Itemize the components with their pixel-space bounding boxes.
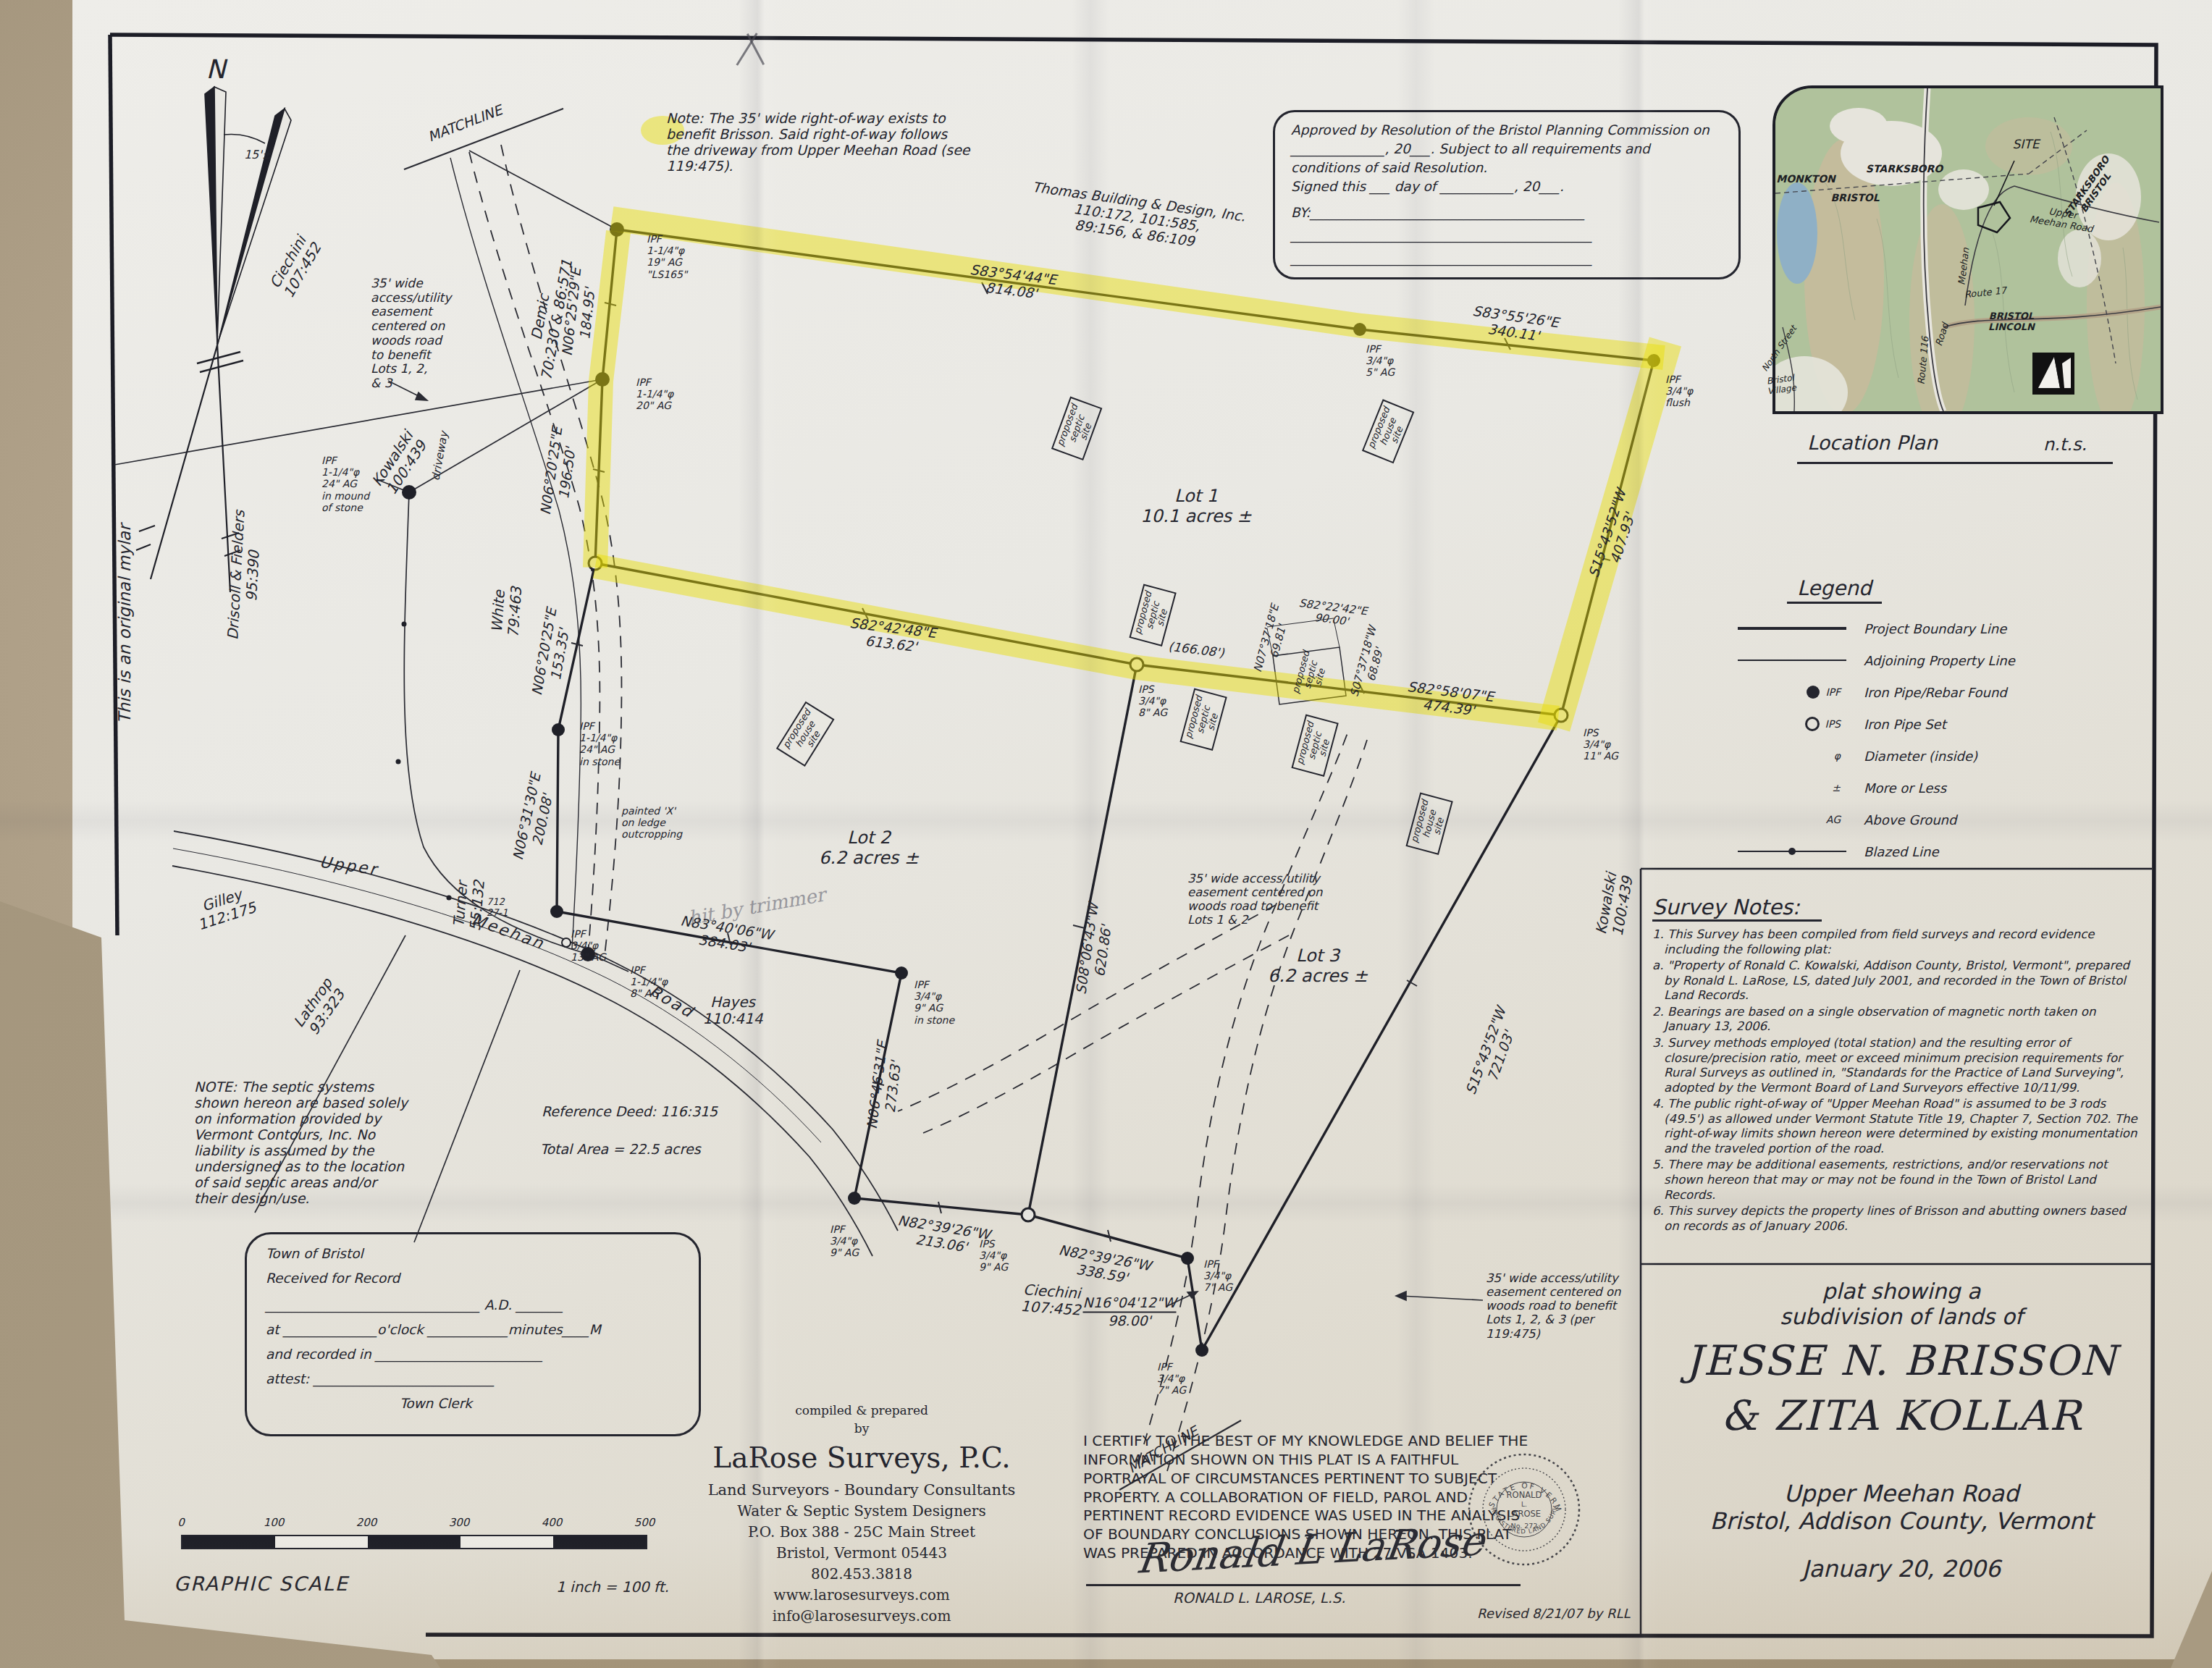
map-label-line: 3/4"φ (1157, 1373, 1186, 1384)
scale-tick-labels: 0100200300400500 (181, 1516, 644, 1530)
map-label-line: IPF (914, 979, 954, 990)
firm-line: Water & Septic System Designers (681, 1502, 1043, 1520)
leader-arrows (388, 381, 1483, 1306)
scale-segment (461, 1536, 553, 1548)
total-area: Total Area = 22.5 acres (540, 1141, 701, 1157)
map-label: MONKTON (1776, 173, 1835, 185)
map-label-line: 1-1/4"φ (647, 245, 687, 256)
map-label-line: Reference Deed: 116:315 (542, 1103, 718, 1119)
map-label-line: 5" AG (1366, 366, 1395, 378)
scale-tick: 0 (177, 1516, 185, 1529)
map-label-line: outcropping (621, 828, 682, 840)
survey-note: 3. Survey methods employed (total statio… (1652, 1036, 2139, 1095)
map-label-line: the driveway from Upper Meehan Road (see (666, 142, 970, 158)
legend-item-label: Adjoining Property Line (1864, 653, 2015, 668)
scale-segment (275, 1536, 368, 1548)
map-label-line: Lots 1, 2, & 3 (per (1486, 1313, 1621, 1326)
map-label: IPF3/4"φflush (1665, 374, 1693, 409)
map-label-line: 35' wide (371, 277, 451, 291)
owner-name-2: & ZITA KOLLAR (1651, 1391, 2152, 1439)
parcel-white: White79:463 (488, 585, 525, 638)
map-label-line: 35' wide access/utility (1486, 1271, 1621, 1285)
firm-line: compiled & prepared (681, 1403, 1043, 1418)
map-label-line: MONKTON (1776, 173, 1835, 185)
map-label-line: painted 'X' (621, 805, 682, 817)
legend-key: φ (1834, 750, 1841, 762)
record-line: at ______________o'clock ____________min… (266, 1322, 680, 1337)
map-label-line: 3/4"φ (1665, 385, 1693, 397)
map-label-line: 7" AG (1203, 1281, 1232, 1293)
legend-item-label: Iron Pipe Set (1864, 717, 1946, 732)
approval-line: Signed this ___ day of ___________, 20__… (1291, 177, 1723, 196)
map-label-line: IPF (579, 720, 620, 732)
survey-note: 4. The public right-of-way of "Upper Mee… (1652, 1097, 2139, 1156)
map-label-line: 3/4"φ (571, 940, 606, 951)
legend-symbol-glyph: AG (1731, 814, 1846, 825)
map-label-line: 19" AG (647, 256, 687, 268)
map-label-line: This is an original mylar (115, 524, 135, 723)
map-label-line: Vermont Contours, Inc. No (194, 1126, 408, 1142)
scale-ratio: 1 inch = 100 ft. (556, 1578, 669, 1596)
map-label-line: IPF (630, 964, 668, 976)
map-label: IPF3/4"φ7" AG (1203, 1258, 1232, 1294)
map-label-line: of stone (321, 502, 369, 513)
legend-item-label: Project Boundary Line (1864, 621, 2006, 636)
legend-item: Project Boundary Line (1731, 612, 2165, 644)
legend-item-label: Iron Pipe/Rebar Found (1864, 685, 2007, 700)
map-label-line: 15'± (244, 148, 272, 162)
map-label-line: 3/4"φ (1138, 695, 1167, 707)
map-label-line: 3/4"φ (830, 1235, 859, 1247)
firm-line: by (681, 1421, 1043, 1436)
signature-line (1086, 1584, 1521, 1586)
mylar-note: This is an original mylar (115, 524, 135, 723)
firm-line: Bristol, Vermont 05443 (681, 1544, 1043, 1562)
scale-tick: 400 (542, 1516, 563, 1529)
legend-key: AG (1826, 814, 1841, 825)
legend-symbol-thick (1731, 627, 1846, 630)
map-label-line: LINCOLN (1988, 321, 2035, 332)
map-label-line: 1-1/4"φ (321, 466, 369, 478)
map-label-line: Lot 3 (1268, 946, 1368, 966)
title-line-1: plat showing a (1651, 1279, 2152, 1304)
map-label-line: 7" AG (1157, 1384, 1186, 1396)
revision-note: Revised 8/21/07 by RLL (1477, 1606, 1631, 1621)
map-label: BRISTOLLINCOLN (1988, 311, 2035, 332)
map-label-line: 27-1 (487, 907, 508, 918)
map-label: IPF3/4"φ13" AG (571, 928, 606, 964)
legend-item: ±More or Less (1731, 772, 2165, 804)
firm-line: Land Surveyors - Boundary Consultants (681, 1481, 1043, 1499)
map-label-line: Lots 1, 2, (371, 362, 451, 376)
firm-line: www.larosesurveys.com (681, 1586, 1043, 1604)
map-label-line: their design/use. (194, 1190, 408, 1206)
map-label: IPF1-1/4"φ8" AG (630, 964, 668, 1000)
map-label: IPF3/4"φ9" AG (830, 1223, 859, 1259)
legend-item: IPSIron Pipe Set (1731, 708, 2165, 740)
legend-item-label: More or Less (1864, 780, 1946, 796)
map-label-line: on information provided by (194, 1111, 408, 1126)
received-for-record-box: Town of BristolReceived for Record______… (245, 1232, 701, 1436)
ipf-symbol (1807, 686, 1820, 699)
map-label-line: 10.1 acres ± (1140, 507, 1251, 527)
map-label-line: shown hereon are based solely (194, 1095, 408, 1111)
north-letter: N (206, 54, 226, 85)
septic-note: NOTE: The septic systemsshown hereon are… (194, 1079, 408, 1206)
surveyor-firm-block: compiled & preparedbyLaRose Surveys, P.C… (681, 1403, 1043, 1628)
map-label-line: IPF (1157, 1361, 1186, 1373)
declination-angle: 15'± (244, 148, 272, 162)
right-of-way-note: Note: The 35' wide right-of-way exists t… (666, 110, 970, 174)
map-label-line: 3/4"φ (1583, 738, 1618, 750)
map-label-line: woods road to benefit (1486, 1299, 1621, 1313)
map-label-line: 712 (487, 896, 508, 907)
approval-line: ________________________________________… (1291, 249, 1723, 268)
approval-line: ______________, 20___. Subject to all re… (1291, 140, 1723, 159)
map-label-line: N16°04'12"W (1083, 1294, 1177, 1313)
map-label-line: woods road (371, 334, 451, 348)
legend-item-label: Blazed Line (1864, 844, 1939, 859)
map-label-line: NOTE: The septic systems (194, 1079, 408, 1095)
map-label-line: 9" AG (830, 1247, 859, 1258)
legend-symbol-ipf: IPF (1731, 686, 1846, 699)
lot2-label: Lot 26.2 acres ± (819, 828, 919, 869)
map-label-line: in stone (579, 756, 620, 767)
survey-notes-title: Survey Notes: (1652, 895, 1822, 922)
map-label-line: IPF (647, 233, 687, 245)
map-label-line: in mound (321, 490, 369, 502)
legend-item: Blazed Line (1731, 835, 2165, 867)
legend-key: ± (1832, 782, 1841, 793)
map-label-line: benefit Brisson. Said right-of-way follo… (666, 126, 970, 142)
map-label: IPF3/4"φ7" AG (1157, 1361, 1186, 1397)
legend-symbol-glyph: φ (1731, 750, 1846, 762)
map-label-line: IPF (1366, 343, 1395, 355)
approval-line: Approved by Resolution of the Bristol Pl… (1291, 121, 1723, 140)
map-label: 71227-1 (487, 896, 508, 918)
map-label-line: woods road to benefit (1187, 899, 1323, 913)
boundary-line-sample (1738, 627, 1846, 630)
map-label-line: 1-1/4"φ (579, 732, 620, 744)
town-clerk-label: Town Clerk (400, 1396, 680, 1411)
project-boundary (557, 229, 1654, 1350)
map-label-line: 98.00' (1083, 1313, 1177, 1329)
map-label-line: 6.2 acres ± (819, 848, 919, 869)
approval-line: BY:_____________________________________… (1291, 203, 1723, 222)
map-label-line: 79:463 (505, 586, 526, 639)
approval-line: ________________________________________… (1291, 226, 1723, 245)
map-label-line: 1-1/4"φ (636, 388, 673, 400)
map-label-line: 3/4"φ (914, 990, 954, 1002)
reference-deed: Reference Deed: 116:315 (542, 1103, 718, 1119)
map-label-line: to benefit (371, 348, 451, 363)
map-label-line: STARKSBORO (1866, 163, 1943, 174)
title-block: plat showing a subdivision of lands of J… (1651, 1279, 2152, 1583)
survey-note: 6. This survey depicts the property line… (1652, 1204, 2139, 1234)
parcel-ciechini-south: Ciechini107:452 (1020, 1281, 1082, 1319)
scale-tick: 300 (449, 1516, 470, 1529)
location-plan-underline (1797, 462, 2113, 464)
approval-line: conditions of said Resolution. (1291, 159, 1723, 177)
map-label-line: 119:475). (666, 158, 970, 174)
firm-line: LaRose Surveys, P.C. (681, 1441, 1043, 1474)
map-label-line: 119:475) (1486, 1327, 1621, 1341)
map-label-line: 11" AG (1583, 750, 1618, 762)
record-line: Town of Bristol (266, 1246, 680, 1261)
map-label: N16°04'12"W98.00' (1083, 1294, 1177, 1328)
map-label-line: on ledge (621, 817, 682, 828)
map-label-line: 6.2 acres ± (1268, 966, 1368, 987)
map-label-line: 3/4"φ (979, 1250, 1008, 1261)
firm-line: 802.453.3818 (681, 1565, 1043, 1583)
legend-item: φDiameter (inside) (1731, 740, 2165, 772)
map-label-line: IPS (1138, 683, 1167, 695)
map-label: IPF3/4"φ9" AGin stone (914, 979, 954, 1026)
legend-key: IPS (1825, 718, 1841, 730)
legend-item-label: Diameter (inside) (1864, 749, 1977, 764)
blazed-line-sample (1738, 851, 1846, 852)
parcel-hayes: Hayes110:414 (702, 994, 762, 1027)
scale-tick: 100 (264, 1516, 285, 1529)
title-road: Upper Meehan Road (1651, 1480, 2152, 1507)
map-label-line: Lot 2 (819, 828, 919, 848)
map-label-line: easement centered on (1187, 885, 1323, 899)
map-label: IPF3/4"φ5" AG (1366, 343, 1395, 379)
map-label: IPF1-1/4"φ19" AG"LS165" (647, 233, 687, 280)
map-label-line: 3/4"φ (1203, 1270, 1232, 1281)
map-label-line: flush (1665, 397, 1693, 408)
photo-backdrop: STATE OF VERMONT REGISTERED LAND SURVEYO… (0, 0, 2212, 1668)
owner-name-1: JESSE N. BRISSON (1651, 1336, 2152, 1384)
inset-north-glyph (2032, 353, 2074, 395)
map-label-line: & 3 (371, 376, 451, 391)
map-label-line: IPF (1665, 374, 1693, 385)
record-box-lines: Town of BristolReceived for Record______… (266, 1246, 680, 1386)
map-label-line: easement (371, 305, 451, 319)
easement-note-west: 35' wideaccess/utilityeasementcentered o… (371, 277, 451, 391)
map-label-line: easement centered on (1486, 1285, 1621, 1299)
map-label: painted 'X'on ledgeoutcropping (621, 805, 682, 841)
map-label-line: Lots 1 & 2 (1187, 913, 1323, 927)
legend-item: Adjoining Property Line (1731, 644, 2165, 676)
map-label-line: SITE (2013, 138, 2040, 152)
map-label-line: liability is assumed by the (194, 1142, 408, 1158)
scale-tick: 200 (356, 1516, 377, 1529)
parcel-driscoll-fielders: Driscoll & Fielders95:390 (224, 510, 265, 641)
map-label: BristolVillage (1765, 373, 1797, 397)
map-label-line: 9" AG (979, 1261, 1008, 1273)
map-label-line: Lot 1 (1140, 486, 1251, 507)
map-label-line: BRISTOL (1830, 192, 1879, 203)
signature-printed-name: RONALD L. LAROSE, L.S. (1173, 1590, 1345, 1606)
lake (1777, 182, 1817, 284)
highlighter-marks (595, 219, 1665, 727)
legend-symbol-blaze (1731, 851, 1846, 852)
location-plan-title: Location Plan (1807, 431, 1938, 454)
map-label-line: centered on (371, 319, 451, 334)
legend-symbol-glyph: ± (1731, 782, 1846, 793)
map-label-line: IPS (979, 1238, 1008, 1250)
title-line-2: subdivision of lands of (1651, 1304, 2152, 1329)
record-line: Received for Record (266, 1271, 680, 1286)
map-label-line: IPF (321, 455, 369, 466)
site-label: SITE (2013, 138, 2040, 152)
lot3-label: Lot 36.2 acres ± (1268, 946, 1368, 987)
map-label: IPS3/4"φ9" AG (979, 1238, 1008, 1273)
map-label-line: 24" AG (321, 478, 369, 489)
firm-line: P.O. Box 388 - 25C Main Street (681, 1523, 1043, 1541)
survey-note: 1. This Survey has been compiled from fi… (1652, 927, 2139, 957)
record-line: and recorded in ________________________… (266, 1347, 680, 1362)
map-label-line: in stone (914, 1014, 954, 1026)
map-label: BRISTOL (1830, 192, 1879, 203)
map-label: IPS3/4"φ11" AG (1583, 727, 1618, 762)
easement-note-southeast: 35' wide access/utilityeasement centered… (1486, 1271, 1621, 1341)
map-label-line: IPF (571, 928, 606, 940)
map-label-line: IPS (1583, 727, 1618, 738)
graphic-scale-title: GRAPHIC SCALE (174, 1572, 349, 1595)
map-label-line: 8" AG (630, 987, 668, 999)
legend-item: IPFIron Pipe/Rebar Found (1731, 676, 2165, 708)
legend-symbol-thin (1731, 660, 1846, 661)
map-label-line: 3/4"φ (1366, 355, 1395, 366)
survey-note: 2. Bearings are based on a single observ… (1652, 1005, 2139, 1035)
north-arrow-compass (136, 87, 291, 592)
map-label-line: undersigned as to the location (194, 1158, 408, 1174)
map-label-line: 1-1/4"φ (630, 976, 668, 987)
legend-symbol-ips: IPS (1731, 717, 1846, 731)
record-line: ________________________________ A.D. __… (266, 1297, 680, 1313)
adjoining-line-sample (1738, 660, 1846, 661)
map-label: IPF1-1/4"φ24" AGin moundof stone (321, 455, 369, 513)
ips-symbol (1805, 717, 1820, 731)
planning-commission-approval-box: Approved by Resolution of the Bristol Pl… (1273, 110, 1741, 279)
map-label: IPF1-1/4"φ24" AGin stone (579, 720, 620, 767)
scale-tick: 500 (634, 1516, 655, 1529)
certification-line: PROPERTY. A COLLABORATION OF FIELD, PARO… (1083, 1488, 1535, 1507)
scale-bar (181, 1535, 647, 1549)
certification-line: PORTRAYAL OF CIRCUMSTANCES PERTINENT TO … (1083, 1470, 1535, 1488)
map-label-line: BRISTOL (1988, 311, 2035, 321)
map-label-line: 35' wide access/utility (1187, 872, 1323, 885)
survey-note: 5. There may be additional easements, re… (1652, 1158, 2139, 1202)
map-label: IPS3/4"φ8" AG (1138, 683, 1167, 719)
map-label-line: of said septic areas and/or (194, 1174, 408, 1190)
title-town: Bristol, Addison County, Vermont (1651, 1507, 2152, 1535)
map-label-line: 8" AG (1138, 707, 1167, 718)
blaze-dot (1788, 848, 1796, 855)
map-label-line: 110:414 (702, 1011, 762, 1027)
map-label: IPF1-1/4"φ20" AG (636, 376, 673, 412)
map-label-line: 9" AG (914, 1002, 954, 1014)
lot1-label: Lot 110.1 acres ± (1140, 486, 1251, 527)
survey-notes: Survey Notes: 1. This Survey has been co… (1652, 895, 2139, 1235)
map-label-line: 20" AG (636, 400, 673, 411)
map-label-line: IPF (830, 1223, 859, 1235)
map-label-line: access/utility (371, 291, 451, 306)
map-label-line: Total Area = 22.5 acres (540, 1141, 701, 1157)
legend-item-label: Above Ground (1864, 812, 1956, 827)
map-label-line: IPF (1203, 1258, 1232, 1270)
scale-segment (553, 1536, 646, 1548)
easement-note-center: 35' wide access/utilityeasement centered… (1187, 872, 1323, 927)
map-label: STARKSBORO (1866, 163, 1943, 174)
map-label-line: "LS165" (647, 269, 687, 280)
legend: Project Boundary LineAdjoining Property … (1731, 612, 2165, 867)
map-label-line: 13" AG (571, 951, 606, 963)
legend-item: AGAbove Ground (1731, 804, 2165, 835)
title-date: January 20, 2006 (1651, 1555, 2152, 1583)
map-label-line: IPF (636, 376, 673, 388)
map-label-line: Note: The 35' wide right-of-way exists t… (666, 110, 970, 126)
firm-line: info@larosesurveys.com (681, 1607, 1043, 1625)
legend-title: Legend (1787, 576, 1882, 604)
location-plan-scale: n.t.s. (2043, 434, 2087, 455)
scale-segment (368, 1536, 461, 1548)
record-line: attest: ___________________________ (266, 1371, 680, 1386)
survey-notes-list: 1. This Survey has been compiled from fi… (1652, 927, 2139, 1234)
map-label-line: 24" AG (579, 744, 620, 755)
legend-key: IPF (1825, 686, 1841, 698)
scale-segment (182, 1536, 275, 1548)
map-label-line: Hayes (702, 994, 762, 1011)
map-label-line: N (206, 54, 226, 85)
survey-note: a. "Property of Ronald C. Kowalski, Addi… (1652, 959, 2139, 1003)
